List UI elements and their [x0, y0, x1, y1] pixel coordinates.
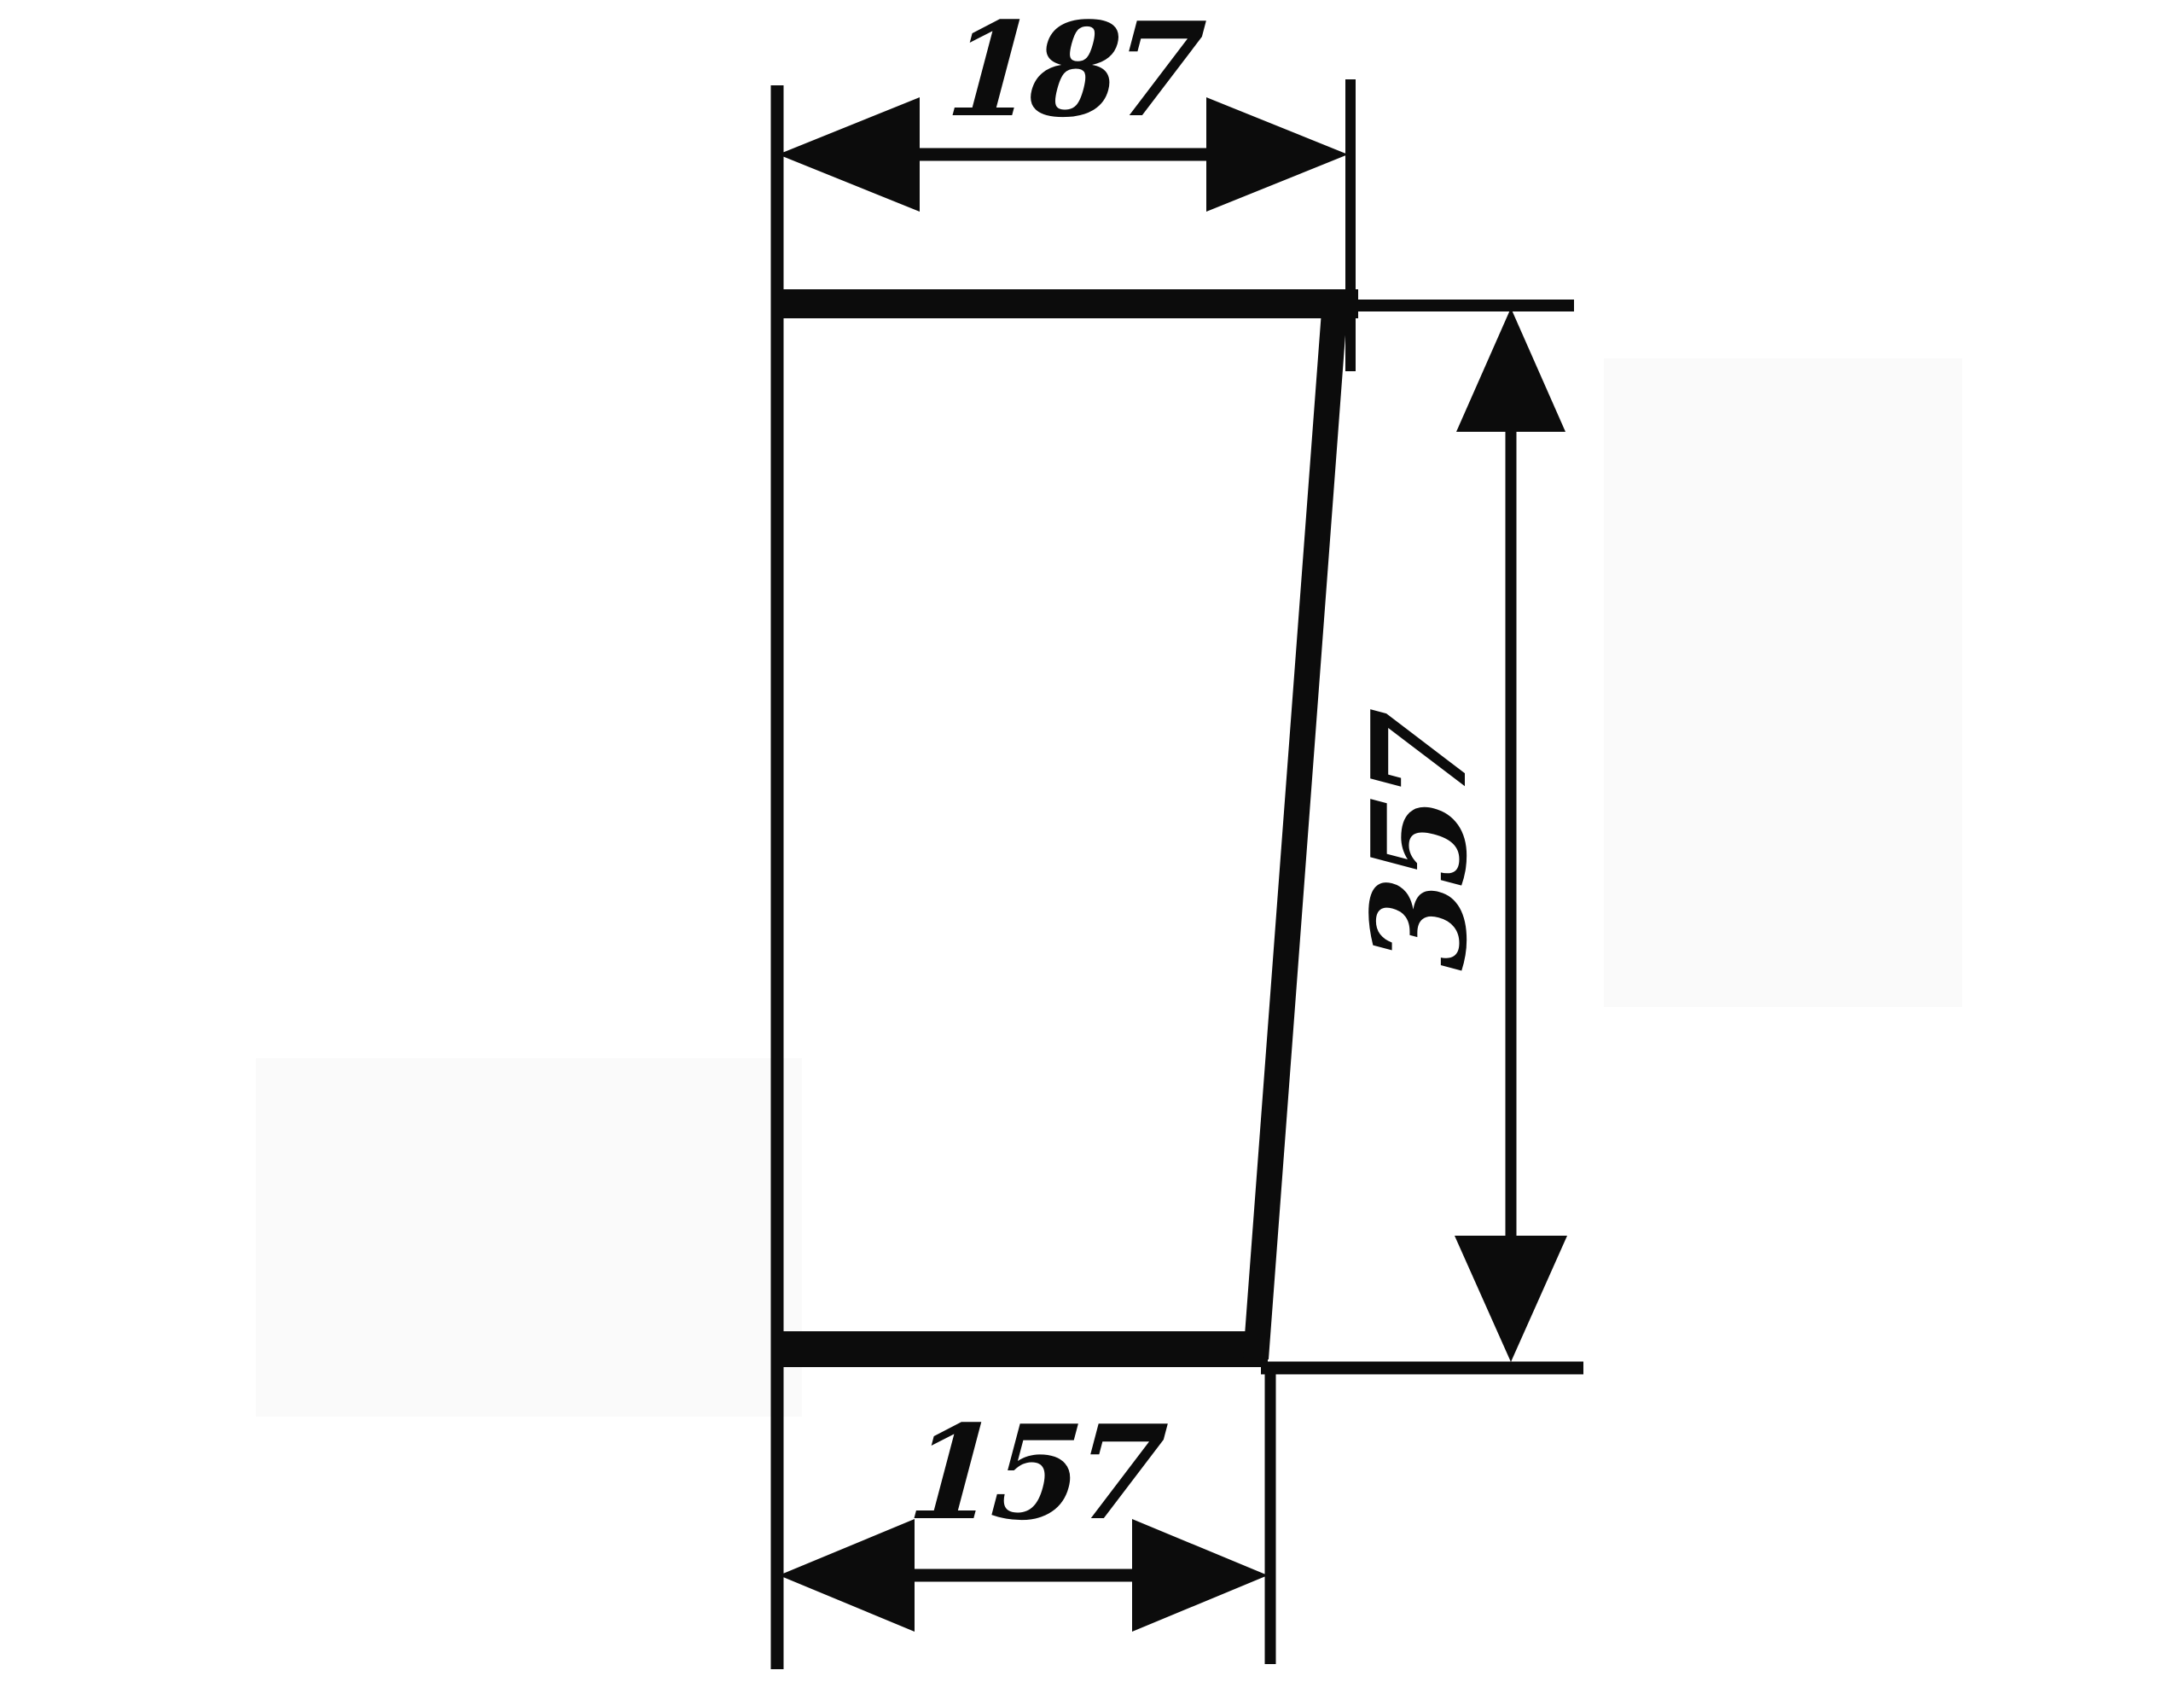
top-width-dimension-label: 187 [943, 5, 1202, 135]
dim-bottom-arrow-left-icon [779, 1519, 915, 1632]
side-height-dimension-label: 357 [1355, 713, 1484, 973]
panel-right-slanted-edge [1256, 300, 1335, 1359]
drawing-canvas: 187 357 157 [0, 0, 2184, 1682]
dim-top-arrow-left-icon [778, 97, 920, 212]
dim-top-arrow-right-icon [1206, 97, 1348, 212]
bottom-width-dimension-label: 157 [904, 1408, 1164, 1538]
dim-side-arrow-down-icon [1455, 1236, 1567, 1362]
dim-side-arrow-up-icon [1456, 308, 1565, 432]
